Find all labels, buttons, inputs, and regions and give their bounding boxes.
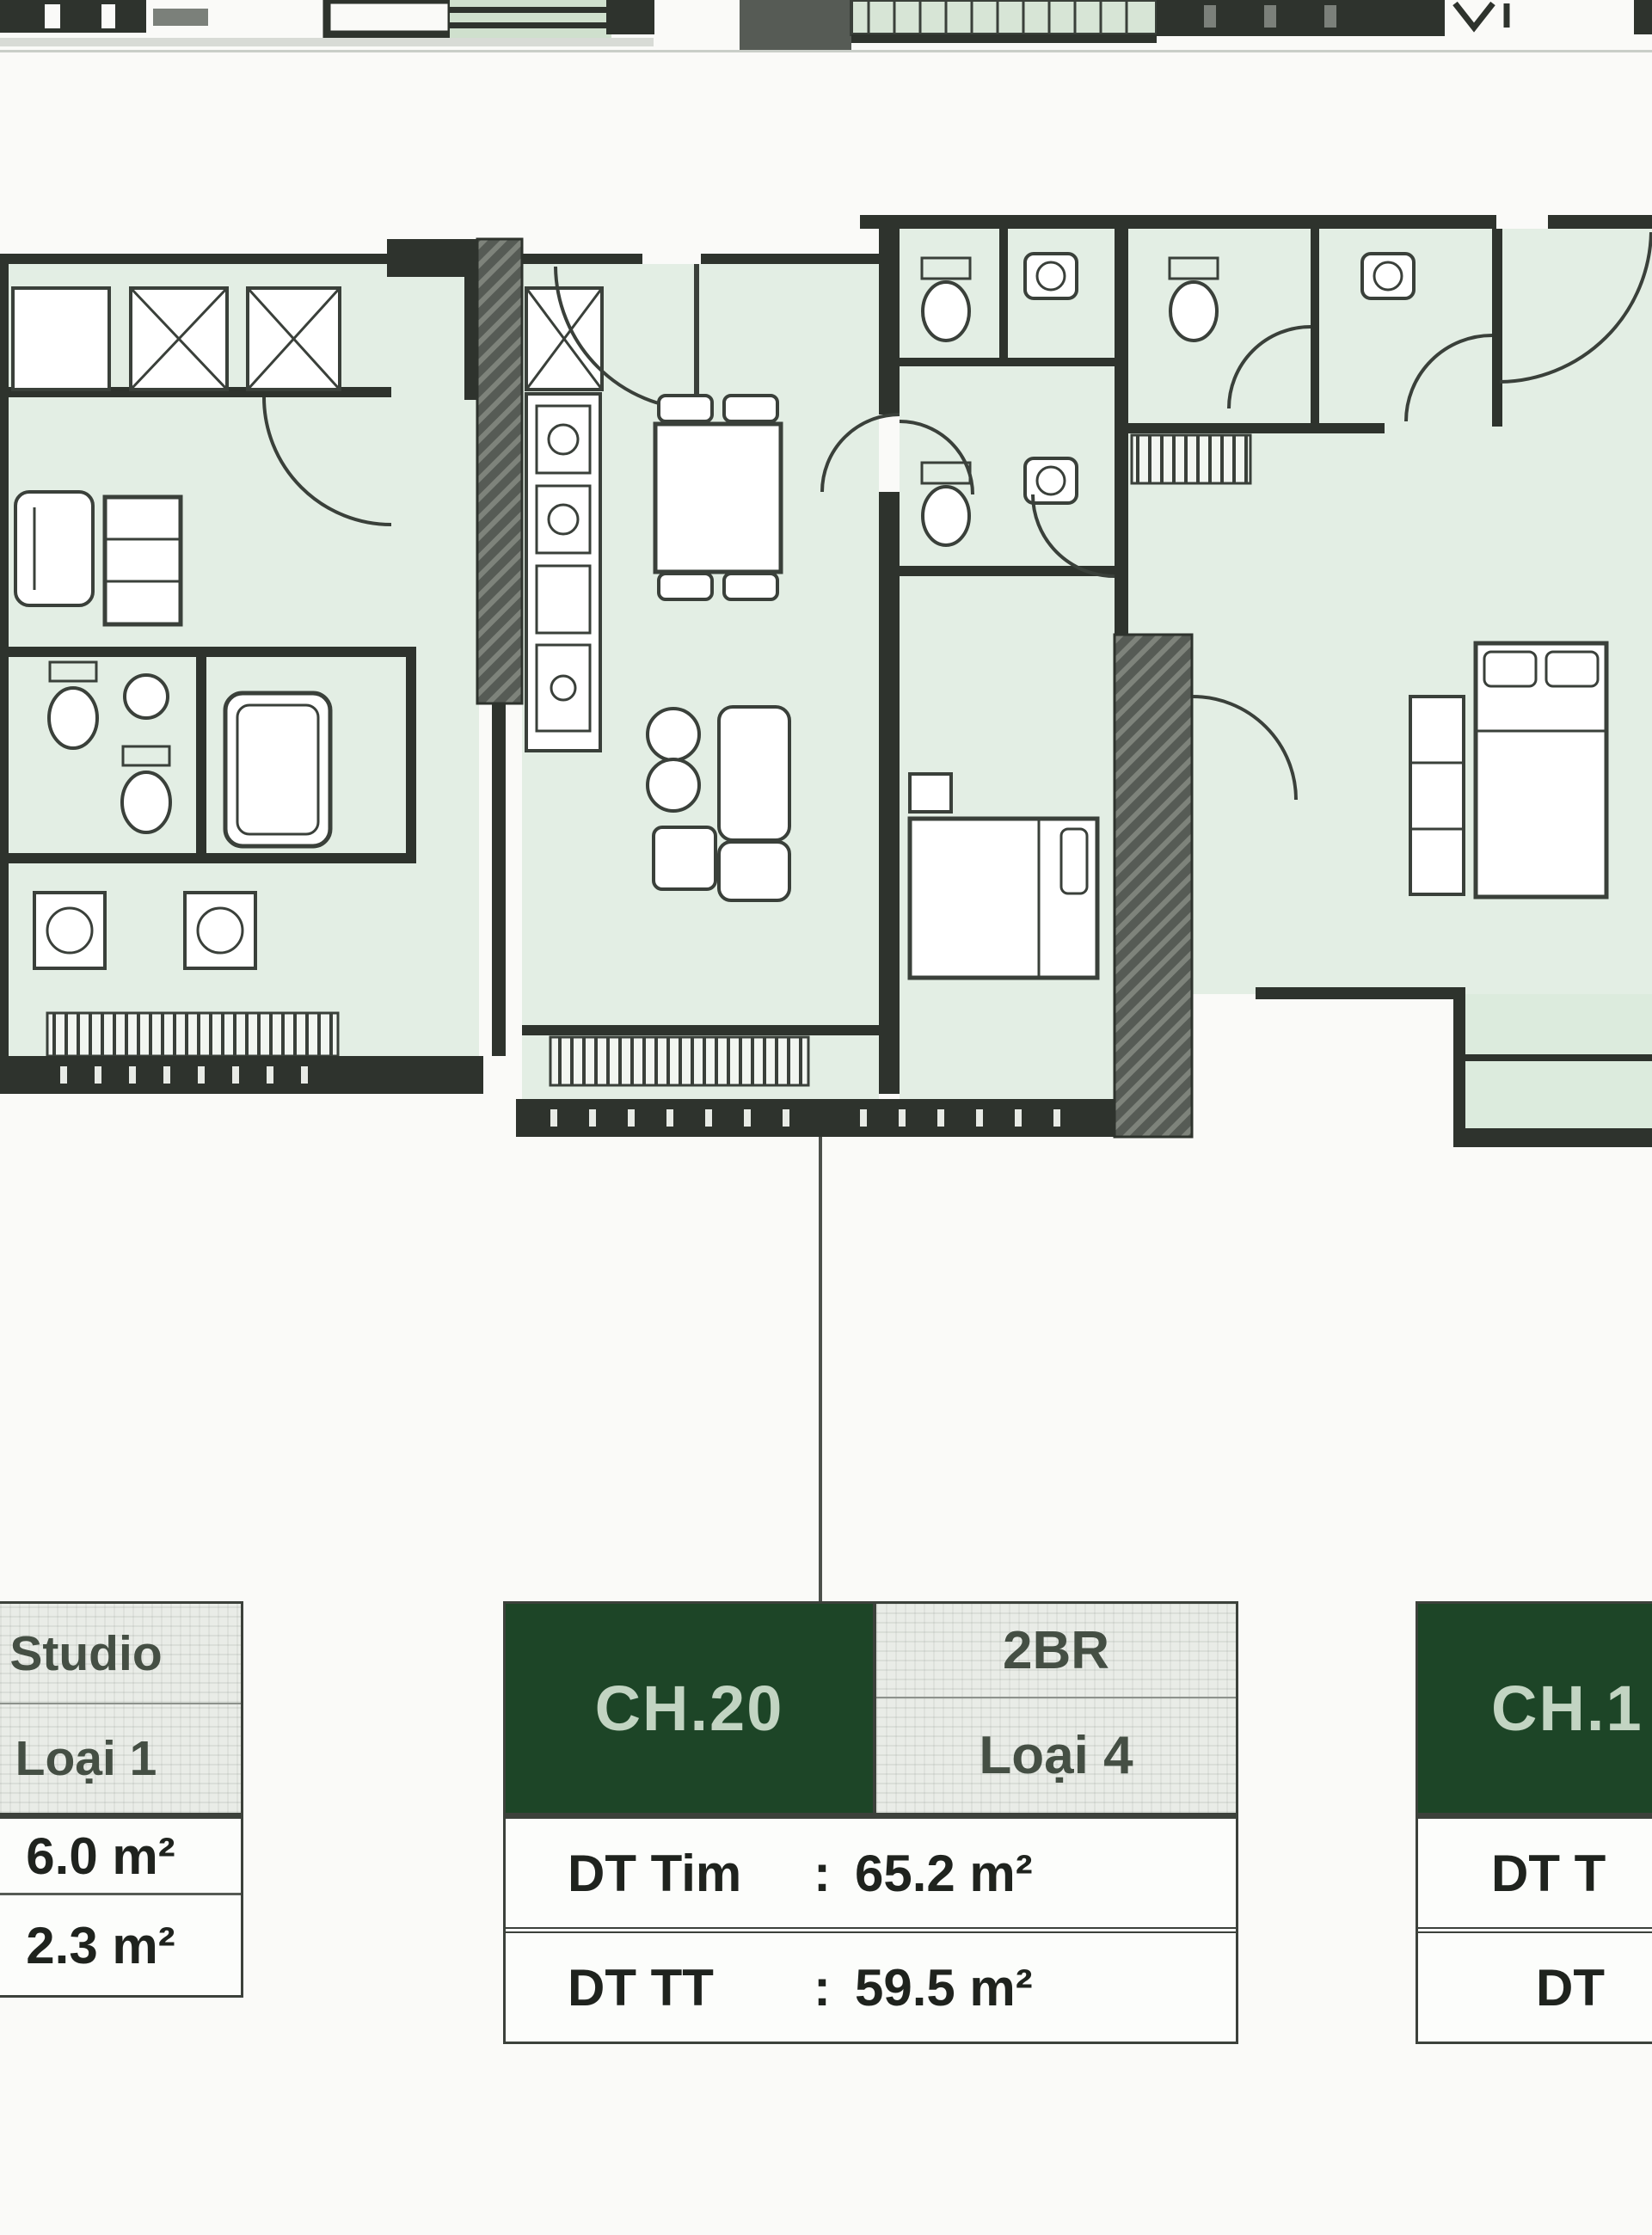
leader-line (819, 1137, 822, 1601)
wardrobe-icon (1132, 435, 1250, 483)
area-label: DT TT (568, 1958, 789, 2017)
dimension-band (0, 1056, 483, 1094)
shaft-wall-hatched (477, 239, 522, 1056)
upper-floorplan-fragment (0, 0, 1652, 57)
area-value: 2.3 m² (26, 1916, 175, 1975)
sink-icon (125, 675, 168, 718)
fragment-wall-blocks (0, 0, 1652, 52)
unit-type-text: Loại 1 (15, 1730, 157, 1787)
unit-type-text: Studio (9, 1625, 162, 1682)
unit-code: CH.1 (1491, 1672, 1643, 1745)
balcony-railing (47, 1013, 338, 1056)
wardrobe-icon (1410, 697, 1464, 894)
area-row: DT Tim : 65.2 m² (506, 1813, 1236, 1927)
unit-type-text: 2BR (1003, 1620, 1109, 1681)
dining-table-icon (655, 396, 781, 599)
area-row: 6.0 m² (0, 1813, 241, 1893)
area-label: DT (1536, 1958, 1605, 2017)
unit-type-text: Loại 4 (979, 1725, 1133, 1786)
unit-info-table-right: CH.1 DT T DT (1416, 1601, 1652, 2044)
washer-icon (34, 893, 105, 968)
area-row: DT T (1418, 1813, 1652, 1927)
dimension-band (821, 1099, 1118, 1137)
washer-icon (185, 893, 255, 968)
colon: : (814, 1958, 831, 2017)
unit-type-line2: Loại 4 (876, 1697, 1236, 1813)
floor-plan (0, 215, 1652, 1148)
floorplan-sheet: Studio Loại 1 6.0 m² 2.3 m² CH.20 2BR Lo… (0, 0, 1652, 2235)
balcony-railing (550, 1037, 808, 1085)
v-mark (1455, 3, 1493, 28)
unit-code-cell: CH.1 (1418, 1604, 1652, 1813)
bed-icon (910, 819, 1097, 978)
area-row: 2.3 m² (0, 1893, 241, 1995)
table-header: CH.20 2BR Loại 4 (506, 1604, 1236, 1813)
sink-icon (1362, 254, 1414, 298)
unit-type-line1: 2BR (876, 1604, 1236, 1697)
area-value: 59.5 m² (855, 1958, 1033, 2017)
colon: : (814, 1844, 831, 1903)
table-header: CH.1 (1418, 1604, 1652, 1813)
kitchen-counter-icon (526, 394, 600, 751)
area-row: DT (1418, 1927, 1652, 2042)
unit-code: CH.20 (595, 1672, 784, 1745)
armchair-icon (15, 492, 93, 605)
unit-code-cell: CH.20 (506, 1604, 873, 1813)
unit-type-line1: Studio (0, 1604, 241, 1703)
area-label: DT Tim (568, 1844, 789, 1903)
kitchen-window-box (526, 288, 602, 390)
area-label: DT T (1491, 1844, 1606, 1903)
unit-info-table-ch20: CH.20 2BR Loại 4 DT Tim : 65.2 m² DT TT … (503, 1601, 1238, 2044)
sink-icon (1025, 254, 1077, 298)
unit-info-table-left: Studio Loại 1 6.0 m² 2.3 m² (0, 1601, 243, 1998)
bed-icon (1476, 643, 1606, 897)
table-icon (105, 497, 181, 624)
area-value: 6.0 m² (26, 1827, 175, 1886)
unit-type-line2: Loại 1 (0, 1703, 241, 1813)
unit-type-cell: 2BR Loại 4 (873, 1604, 1236, 1813)
area-row: DT TT : 59.5 m² (506, 1927, 1236, 2042)
balcony-window-boxes (13, 288, 340, 390)
nightstand-icon (910, 774, 951, 812)
area-value: 65.2 m² (855, 1844, 1033, 1903)
bathtub-icon (225, 693, 330, 846)
